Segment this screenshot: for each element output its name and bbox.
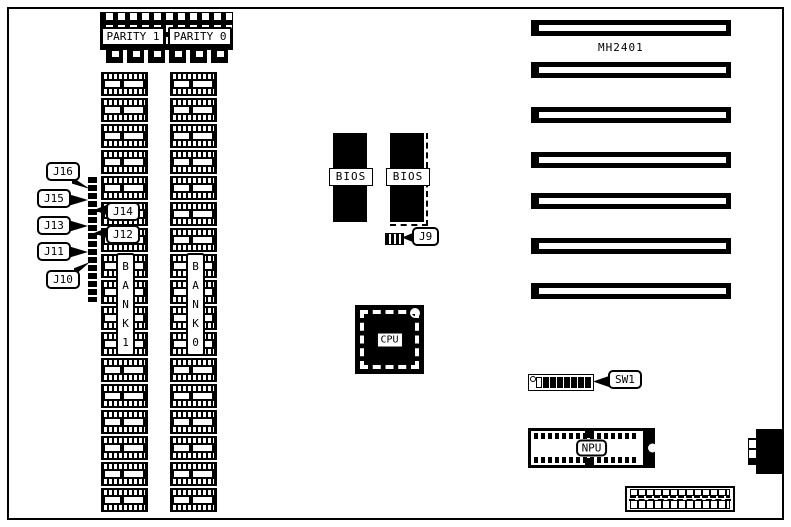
memory-chip <box>101 462 148 486</box>
npu-label: NPU <box>576 440 608 457</box>
dip-switch-position <box>585 377 591 388</box>
dip-switch-position <box>578 377 584 388</box>
chip-leg <box>148 50 165 63</box>
memory-chip <box>170 176 217 200</box>
memory-chip <box>170 436 217 460</box>
npu-socket: NPU <box>528 428 655 468</box>
parity0-label: PARITY 0 <box>168 27 232 46</box>
memory-chip <box>170 488 217 512</box>
keyboard-connector-pin <box>749 440 756 448</box>
chip-leg <box>106 50 123 63</box>
chip-leg <box>190 50 207 63</box>
keyboard-connector-body <box>756 429 784 474</box>
callout-j14: J14 <box>106 202 140 221</box>
chip-leg <box>127 50 144 63</box>
memory-chip <box>170 384 217 408</box>
jumper-pin-strip <box>88 177 97 302</box>
memory-chip <box>170 410 217 434</box>
callout-j13: J13 <box>37 216 71 235</box>
memory-chip <box>101 358 148 382</box>
parity1-label: PARITY 1 <box>101 27 165 46</box>
chip-leg <box>169 50 186 63</box>
chip-leg <box>211 50 228 63</box>
bios-right-label: BIOS <box>386 168 430 186</box>
dip-switch-position <box>564 377 570 388</box>
keyboard-connector-pin <box>749 450 756 458</box>
npu-key-tab-bottom <box>585 458 594 465</box>
bios-left-label: BIOS <box>329 168 373 186</box>
bank1-label: B A N K 1 <box>116 253 135 356</box>
callout-j10: J10 <box>46 270 80 289</box>
expansion-slot <box>531 62 731 78</box>
expansion-slot <box>531 152 731 168</box>
memory-chip <box>170 124 217 148</box>
connector-pin-row-lower <box>630 500 730 509</box>
callout-j16: J16 <box>46 162 80 181</box>
memory-chip <box>101 436 148 460</box>
callout-j11: J11 <box>37 242 71 261</box>
dip-switch-sw1 <box>528 374 594 391</box>
expansion-slot <box>531 283 731 299</box>
expansion-slot <box>531 193 731 209</box>
dip-switch-position <box>557 377 563 388</box>
memory-chip <box>170 228 217 252</box>
npu-key-tab-top <box>585 431 594 438</box>
memory-chip <box>101 410 148 434</box>
callout-j15: J15 <box>37 189 71 208</box>
expansion-slot <box>531 107 731 123</box>
dip-switch-cells <box>536 377 591 388</box>
expansion-slot <box>531 20 731 36</box>
dip-switch-position <box>536 377 542 388</box>
connector-pin-dashes <box>630 496 730 498</box>
memory-chip <box>101 384 148 408</box>
board-model-label: MH2401 <box>598 41 644 54</box>
memory-chip <box>101 150 148 174</box>
callout-sw1: SW1 <box>608 370 642 389</box>
memory-chip <box>170 98 217 122</box>
cpu-pin1-indicator <box>410 308 420 318</box>
cpu-label: CPU <box>376 332 402 347</box>
memory-chip <box>101 124 148 148</box>
j9-jumper-block <box>385 233 404 245</box>
dip-switch-position <box>571 377 577 388</box>
npu-notch <box>648 444 657 453</box>
pin-header-connector <box>625 486 735 512</box>
dip-switch-position <box>543 377 549 388</box>
memory-chip <box>170 150 217 174</box>
dip-switch-position <box>550 377 556 388</box>
callout-j12: J12 <box>106 225 140 244</box>
memory-chip <box>101 176 148 200</box>
memory-chip <box>170 202 217 226</box>
memory-chip <box>101 488 148 512</box>
memory-chip <box>101 72 148 96</box>
bios-alt-outline-horizontal <box>390 224 428 226</box>
connector-pin-row-upper <box>630 489 730 496</box>
expansion-slot <box>531 238 731 254</box>
motherboard-diagram: PARITY 1 PARITY 0 B A N K 1 B A N K 0 J1… <box>0 0 791 527</box>
memory-chip <box>170 358 217 382</box>
memory-chip <box>101 98 148 122</box>
memory-chip <box>170 462 217 486</box>
cpu-socket: CPU <box>355 305 424 374</box>
callout-j9: J9 <box>412 227 439 246</box>
memory-chip <box>170 72 217 96</box>
bank0-label: B A N K 0 <box>186 253 205 356</box>
